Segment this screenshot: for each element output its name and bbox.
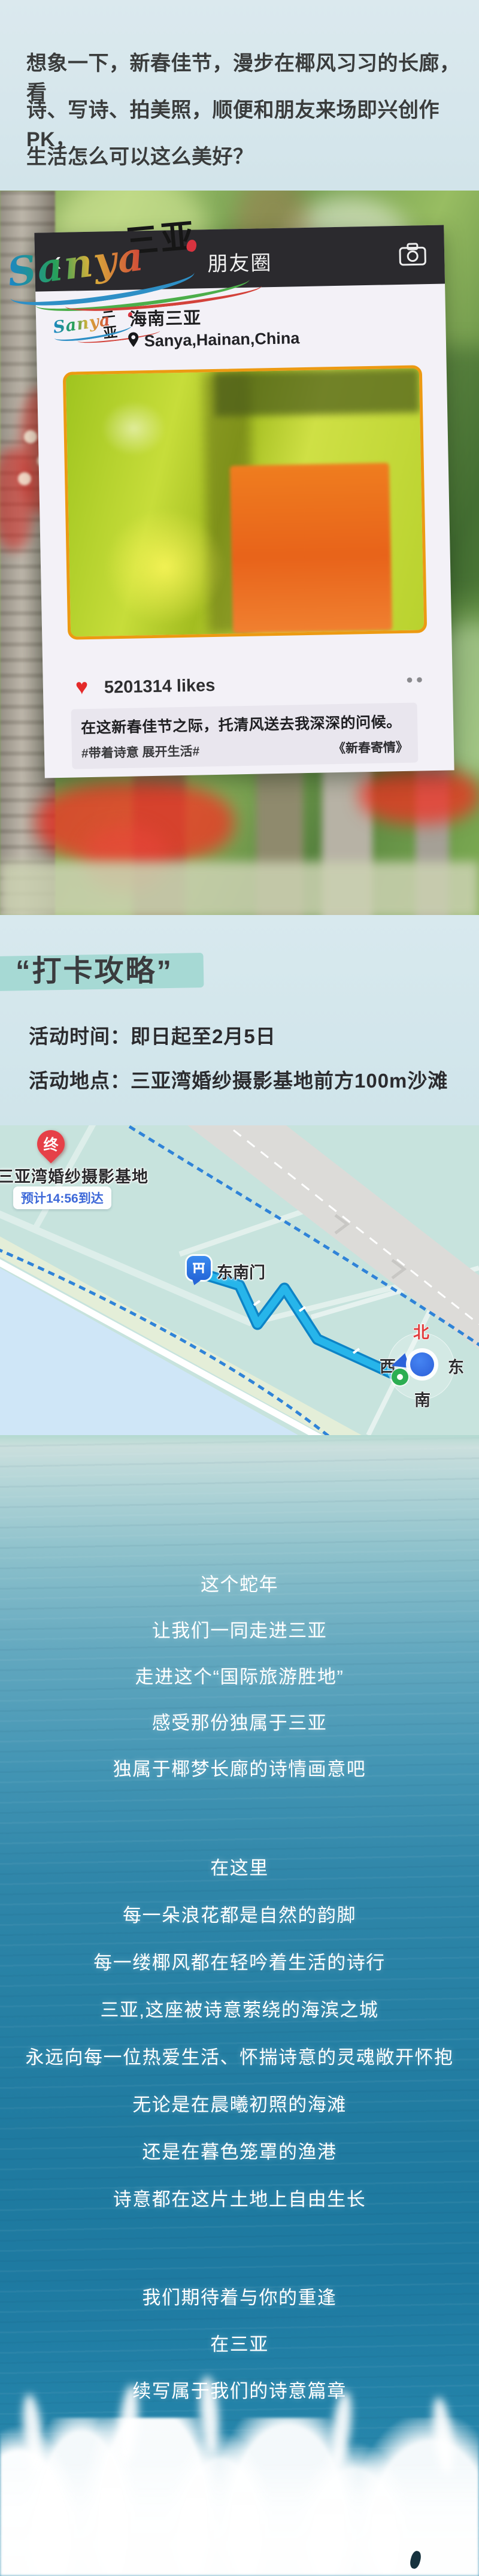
- destination-pin-label: 终: [37, 1130, 65, 1158]
- more-dots-icon[interactable]: ••: [406, 670, 426, 691]
- poem-line: 永远向每一位热爱生活、怀揣诗意的灵魂敞开怀抱: [0, 2034, 479, 2081]
- poem-stanza-2: 在这里 每一朵浪花都是自然的韵脚 每一缕椰风都在轻吟着生活的诗行 三亚,这座被诗…: [0, 1844, 479, 2223]
- hashtag-text: #带着诗意 展开生活#: [81, 742, 200, 762]
- poem-line: 这个蛇年: [0, 1562, 479, 1608]
- current-position-icon: [410, 1352, 434, 1376]
- poem-line: 在这里: [0, 1844, 479, 1892]
- poem-stanza-3: 我们期待着与你的重逢 在三亚 续写属于我们的诗意篇章: [0, 2275, 479, 2415]
- compass-north: 北: [413, 1319, 429, 1343]
- eta-bubble: 预计14:56到达: [13, 1186, 111, 1209]
- promo-page: 想象一下，新春佳节，漫步在椰风习习的长廊，看 诗、写诗、拍美照，顺便和朋友来场即…: [0, 0, 479, 2576]
- image-glow: [104, 508, 226, 626]
- camera-icon[interactable]: [399, 242, 427, 270]
- poem-line: 三亚,这座被诗意萦绕的海滨之城: [0, 1986, 479, 2034]
- ocean-horizon-band: [0, 1435, 479, 1447]
- map-section: 终 三亚湾婚纱摄影基地 预计14:56到达 东南门 北 西 东 南: [0, 1125, 479, 1435]
- poem-line: 每一朵浪花都是自然的韵脚: [0, 1892, 479, 1939]
- destination-name: 三亚湾婚纱摄影基地: [0, 1164, 148, 1187]
- likes-count: 5201314 likes: [104, 676, 216, 698]
- gate-icon: [187, 1256, 211, 1280]
- intro-section: 想象一下，新春佳节，漫步在椰风习习的长廊，看 诗、写诗、拍美照，顺便和朋友来场即…: [0, 0, 479, 191]
- poem-line: 让我们一同走进三亚: [0, 1608, 479, 1654]
- photo-section: 三亚 Sanya ‹ 朋友圈 三亚: [0, 191, 479, 915]
- poem-line: 感受那份独属于三亚: [0, 1700, 479, 1746]
- caption-box: 在这新春佳节之际，托清风送去我深深的问候。 #带着诗意 展开生活# 《新春寄情》: [71, 703, 419, 769]
- caption-text: 在这新春佳节之际，托清风送去我深深的问候。: [81, 710, 402, 738]
- compass-south: 南: [414, 1387, 431, 1411]
- ground-blur: [0, 862, 479, 915]
- poem-signature: 《新春寄情》: [333, 738, 409, 757]
- location-text: Sanya,Hainan,China: [144, 329, 300, 351]
- guide-activity-place: 活动地点：三亚湾婚纱摄影基地前方100m沙滩: [29, 1065, 448, 1094]
- gate-name: 东南门: [217, 1260, 265, 1283]
- poem-stanza-1: 这个蛇年 让我们一同走进三亚 走进这个“国际旅游胜地” 感受那份独属于三亚 独属…: [0, 1562, 479, 1792]
- poem-line: 还是在暮色笼罩的渔港: [0, 2128, 479, 2176]
- intro-text-line: 生活怎么可以这么美好？: [26, 140, 469, 170]
- route-start-dot: [392, 1369, 408, 1385]
- breaking-wave: [0, 2418, 479, 2576]
- guide-activity-time: 活动时间：即日起至2月5日: [29, 1020, 276, 1049]
- poem-line: 诗意都在这片土地上自由生长: [0, 2176, 479, 2223]
- poem-line: 续写属于我们的诗意篇章: [0, 2368, 479, 2415]
- image-bokeh: [87, 388, 181, 469]
- pearl-ornament: [24, 430, 37, 443]
- ocean-section: 这个蛇年 让我们一同走进三亚 走进这个“国际旅游胜地” 感受那份独属于三亚 独属…: [0, 1435, 479, 2576]
- pearl-ornament: [18, 472, 31, 485]
- image-orange-lantern: [230, 463, 392, 634]
- compass-east: 东: [448, 1354, 464, 1378]
- poem-line: 无论是在晨曦初照的海滩: [0, 2081, 479, 2128]
- poem-line: 走进这个“国际旅游胜地”: [0, 1654, 479, 1700]
- red-tassel: [0, 448, 34, 550]
- poem-line: 在三亚: [0, 2321, 479, 2368]
- destination-pin: 终: [31, 1125, 70, 1164]
- post-image: [63, 365, 427, 639]
- red-flowers-blur: [359, 767, 479, 824]
- poem-line: 独属于椰梦长廊的诗情画意吧: [0, 1746, 479, 1792]
- poem-line: 每一缕椰风都在轻吟着生活的诗行: [0, 1939, 479, 1986]
- heart-icon[interactable]: ♥: [75, 674, 88, 699]
- sanya-logo: 三亚 Sanya: [7, 212, 289, 332]
- likes-row: ♥ 5201314 likes ••: [43, 667, 453, 702]
- guide-section: “打卡攻略” 活动时间：即日起至2月5日 活动地点：三亚湾婚纱摄影基地前方100…: [0, 915, 479, 1125]
- guide-title: “打卡攻略”: [16, 947, 173, 990]
- poem-line: 我们期待着与你的重逢: [0, 2275, 479, 2321]
- image-shadow-band: [214, 368, 420, 416]
- location-pin-icon: [128, 331, 140, 351]
- caption-tags-row: #带着诗意 展开生活# 《新春寄情》: [81, 738, 408, 762]
